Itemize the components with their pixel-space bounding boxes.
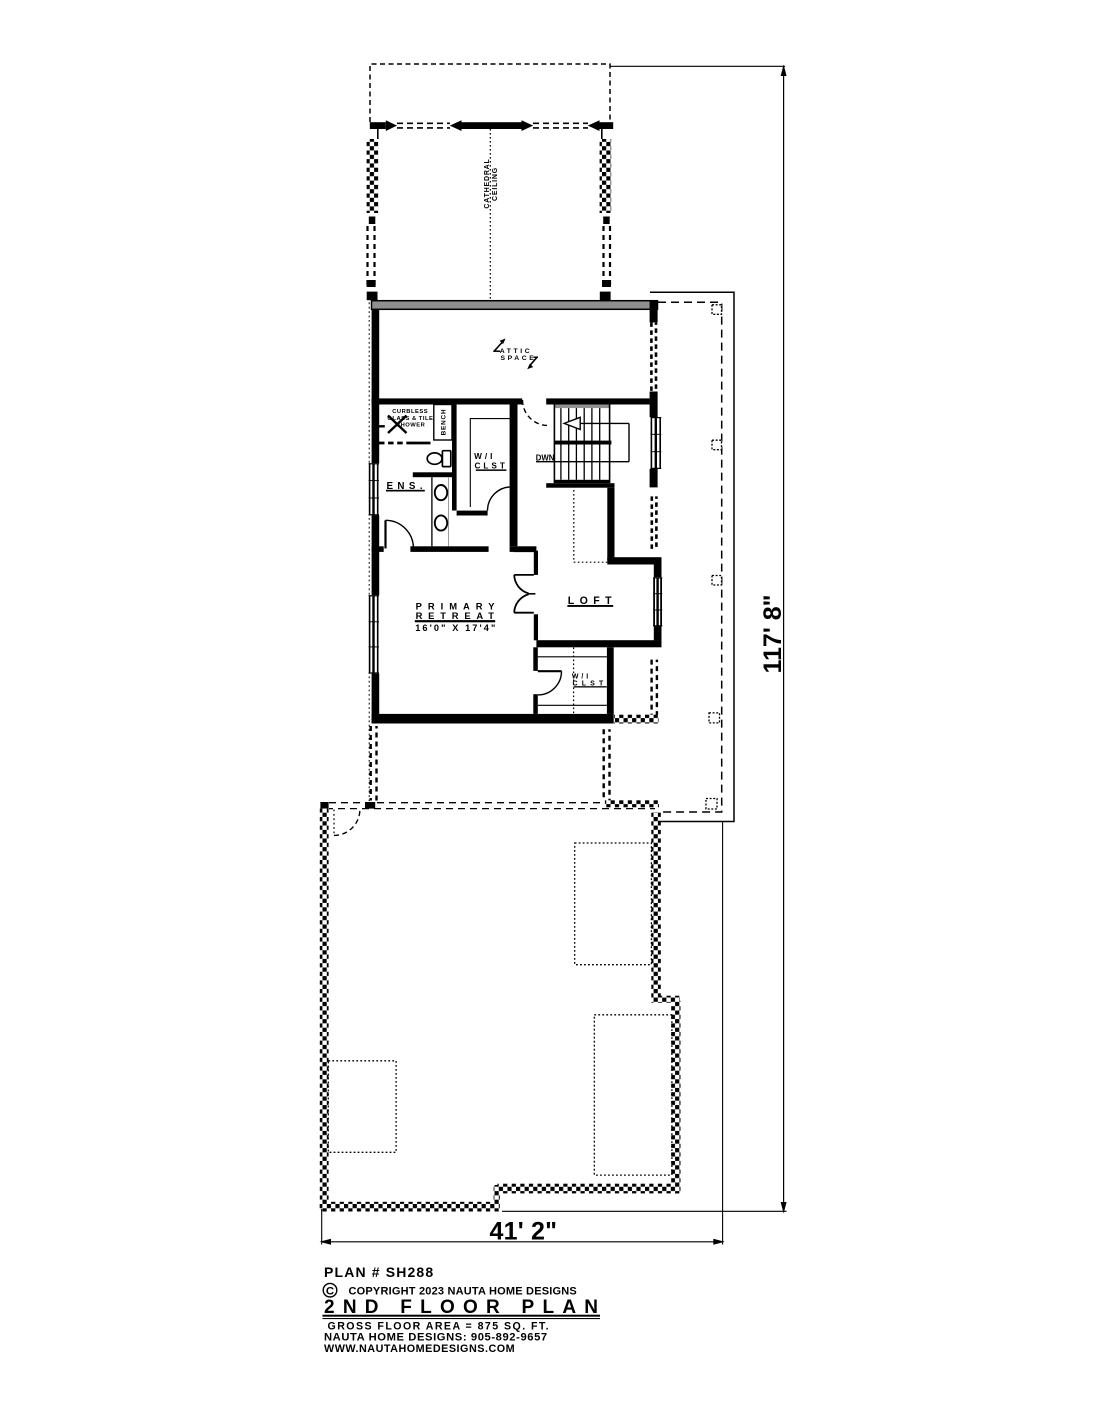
svg-text:W/I: W/I xyxy=(572,673,591,680)
svg-text:SHOWER: SHOWER xyxy=(396,422,425,428)
svg-text:W/I: W/I xyxy=(474,452,495,461)
svg-text:41' 2": 41' 2" xyxy=(490,1217,558,1245)
svg-text:PLAN # SH288: PLAN # SH288 xyxy=(324,1264,434,1280)
svg-text:GLASS & TILE: GLASS & TILE xyxy=(387,416,433,422)
svg-text:BENCH: BENCH xyxy=(440,409,447,436)
svg-text:CEILING: CEILING xyxy=(492,167,499,201)
svg-text:C: C xyxy=(326,1285,334,1297)
svg-text:SPACE: SPACE xyxy=(501,355,537,362)
svg-text:CURBLESS: CURBLESS xyxy=(392,409,428,415)
svg-text:117' 8": 117' 8" xyxy=(759,595,787,674)
svg-text:WWW.NAUTAHOMEDESIGNS.COM: WWW.NAUTAHOMEDESIGNS.COM xyxy=(324,1343,515,1355)
svg-text:COPYRIGHT 2023 NAUTA HOME DESI: COPYRIGHT 2023 NAUTA HOME DESIGNS xyxy=(349,1286,577,1298)
svg-text:CLST: CLST xyxy=(475,462,508,471)
svg-text:RETREAT: RETREAT xyxy=(416,610,500,621)
svg-text:16'0" X 17'4": 16'0" X 17'4" xyxy=(415,623,497,633)
svg-text:DWN: DWN xyxy=(536,453,555,462)
